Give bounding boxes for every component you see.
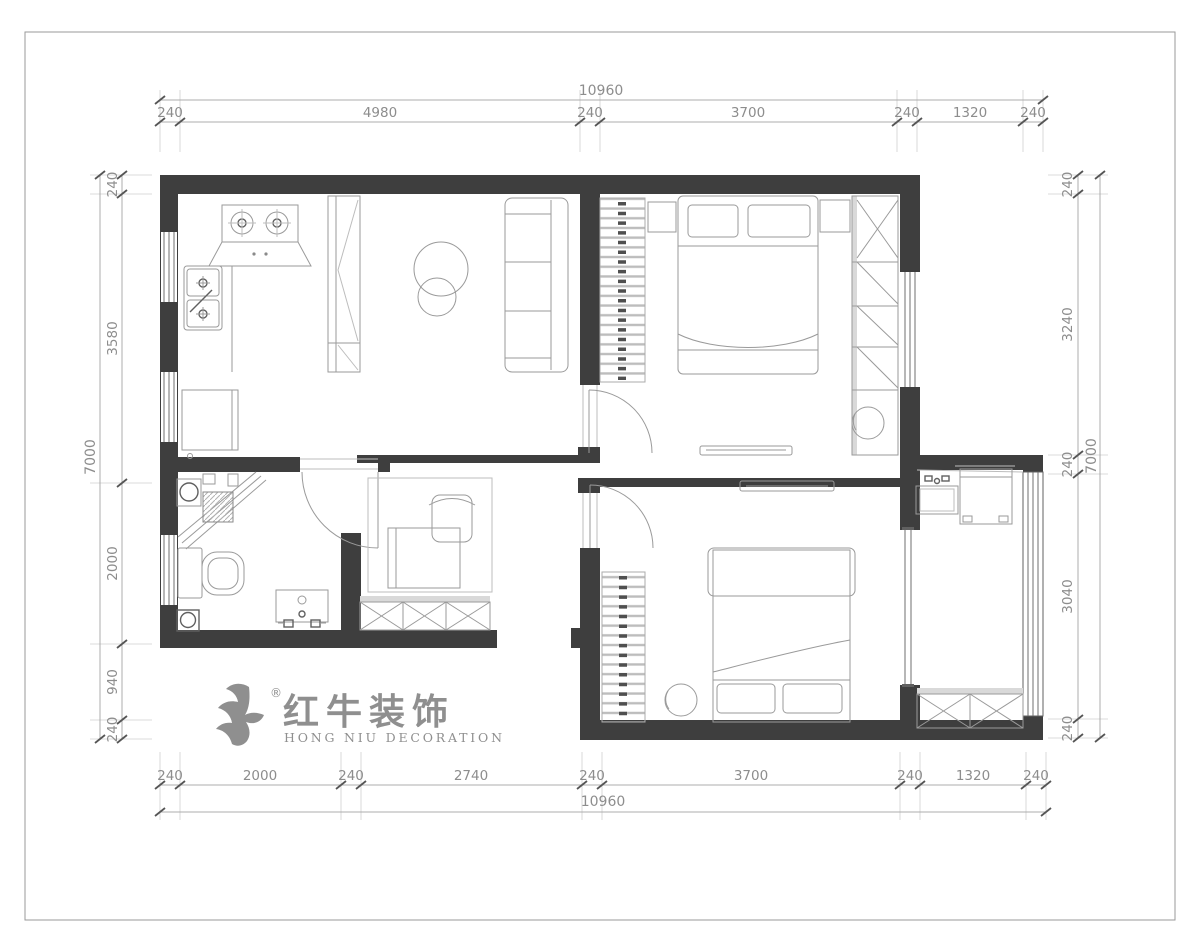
bedroom1	[600, 196, 898, 455]
balcony-window-wall	[1023, 472, 1043, 716]
gas-stove-icon	[209, 205, 311, 266]
bathroom-door	[300, 459, 378, 548]
dim-label: 240	[894, 105, 920, 121]
wardrobe-icon	[852, 196, 898, 455]
window-icon	[161, 535, 177, 605]
logo-text-cn: 红牛装饰	[283, 692, 455, 733]
dim-label: 10960	[581, 794, 626, 810]
dim-label: 2740	[454, 768, 488, 784]
chair-icon	[429, 495, 475, 542]
desk-icon	[388, 528, 460, 588]
water-heater-icon	[177, 479, 201, 506]
balcony-edge	[917, 470, 1023, 472]
balcony	[916, 466, 1023, 728]
bull-logo-icon	[216, 684, 264, 746]
dim-label: 2000	[243, 768, 277, 784]
vanity-icon	[276, 590, 328, 627]
rug-outline	[368, 478, 492, 592]
dim-label: 10960	[579, 83, 624, 99]
dimension-left: 7000 240 3580 2000 940 240	[83, 171, 152, 743]
radiator-icon	[600, 198, 645, 382]
tv-icon	[700, 446, 792, 455]
balcony-sliding-door	[902, 527, 914, 687]
dim-label: 240	[1023, 768, 1049, 784]
washing-machine-icon	[955, 466, 1015, 524]
left-wall-windows	[161, 232, 177, 605]
dim-label: 240	[1060, 172, 1076, 198]
radiator-icon	[602, 572, 645, 722]
dim-label: 3040	[1060, 579, 1076, 613]
dim-label: 2000	[105, 546, 121, 580]
dim-label: 240	[579, 768, 605, 784]
nightstand-icon	[648, 202, 676, 232]
hallway	[360, 478, 492, 630]
fixture-icon	[228, 474, 238, 486]
fridge-icon	[182, 390, 238, 459]
dimension-top: 10960 240 4980 240 3700 240 1320 240	[155, 83, 1048, 152]
dim-label: 7000	[83, 439, 99, 475]
sofa-icon	[505, 198, 568, 372]
dim-label: 940	[105, 669, 121, 695]
bedroom1-door	[583, 385, 652, 453]
dim-label: 240	[1020, 105, 1046, 121]
brand-logo: ® 红牛装饰 HONG NIU DECORATION	[216, 684, 505, 746]
bed-icon	[678, 196, 818, 374]
tall-cabinet-icon	[328, 196, 360, 372]
toilet-icon	[178, 548, 244, 598]
dim-label: 3700	[734, 768, 768, 784]
dim-label: 3240	[1060, 307, 1076, 341]
dim-label: 3700	[731, 105, 765, 121]
dining-table-circles	[414, 242, 468, 316]
bedroom2-door	[583, 485, 653, 548]
dim-label: 3580	[105, 321, 121, 355]
bed-icon	[708, 548, 855, 722]
laundry-sink-icon	[916, 476, 958, 514]
nightstand-icon	[820, 200, 850, 232]
dim-label: 240	[105, 717, 121, 743]
dim-label: 240	[338, 768, 364, 784]
extension-lines	[90, 175, 152, 739]
dim-label: 4980	[363, 105, 397, 121]
kitchen-sink-icon	[184, 266, 222, 330]
dim-label: 1320	[956, 768, 990, 784]
dim-label: 240	[157, 768, 183, 784]
dim-label: 7000	[1084, 438, 1100, 474]
dim-label: 240	[897, 768, 923, 784]
dim-label: 240	[105, 172, 121, 198]
registered-mark: ®	[270, 686, 282, 700]
window-icon	[161, 232, 177, 302]
floor-drain-icon	[203, 492, 233, 522]
bedroom2	[602, 481, 855, 722]
shoe-cabinet-icon	[360, 596, 490, 630]
floor-plan-page: 10960 240 4980 240 3700 240 1320 240 240…	[0, 0, 1200, 952]
stool-icon	[665, 684, 697, 716]
dim-label: 240	[1060, 716, 1076, 742]
floor-plan-drawing: 10960 240 4980 240 3700 240 1320 240 240…	[0, 0, 1200, 952]
dimension-bottom: 240 2000 240 2740 240 3700 240 1320 240 …	[155, 752, 1051, 820]
fixture-icon	[203, 474, 215, 484]
floor-drain-icon	[177, 610, 199, 631]
dim-label: 240	[157, 105, 183, 121]
logo-text-en: HONG NIU DECORATION	[284, 730, 505, 745]
dim-label: 240	[577, 105, 603, 121]
dimension-right: 240 3240 240 3040 240 7000	[1048, 171, 1108, 742]
dim-label: 240	[1060, 452, 1076, 478]
window-icon	[161, 372, 177, 442]
dim-label: 1320	[953, 105, 987, 121]
kitchen	[182, 196, 468, 459]
living-room	[505, 198, 568, 372]
bedroom1-window	[901, 272, 919, 387]
